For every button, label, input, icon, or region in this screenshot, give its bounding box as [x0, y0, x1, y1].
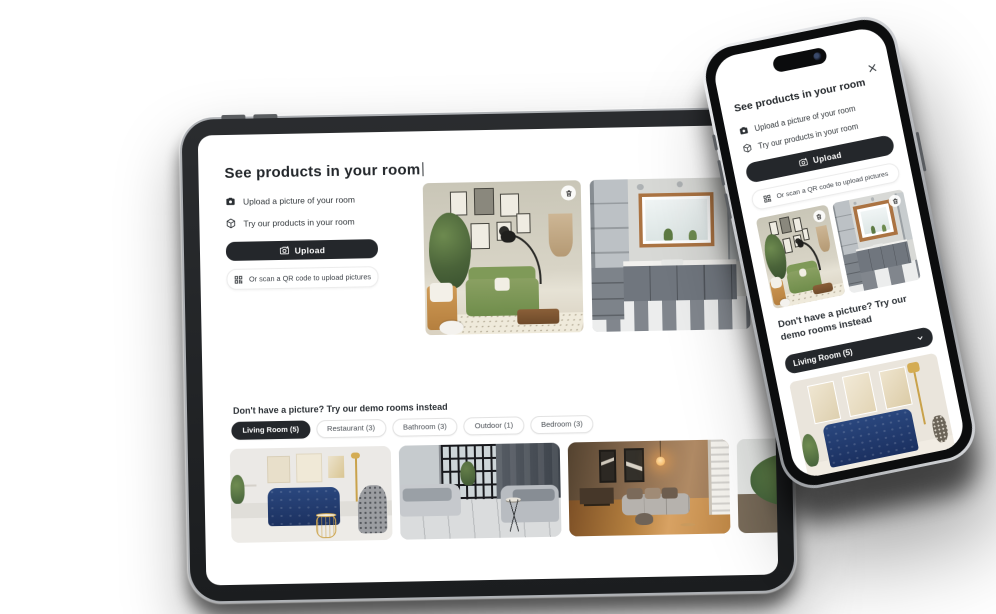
demo-room-list	[230, 436, 779, 543]
wall-art	[598, 450, 616, 483]
ceiling-light	[677, 181, 683, 187]
wall-frame	[473, 188, 494, 216]
demo-room-grey-sectional[interactable]	[399, 443, 562, 540]
tablet-volume-button	[253, 114, 277, 118]
tablet-mockup: See products in your room Upload a pictu…	[181, 108, 794, 602]
cube-icon	[225, 218, 236, 229]
feature-label: Upload a picture of your room	[243, 194, 355, 206]
floor-lamp	[912, 367, 926, 424]
feature-label: Try our products in your room	[243, 216, 354, 228]
trash-icon	[891, 197, 899, 205]
wall-art	[806, 381, 840, 424]
room-photo-kitchen	[832, 189, 921, 294]
close-icon[interactable]	[865, 61, 879, 75]
upload-button[interactable]: Upload	[226, 239, 378, 261]
plant	[428, 213, 472, 290]
lamp-shade	[501, 230, 515, 242]
tablet-screen: See products in your room Upload a pictu…	[198, 125, 779, 586]
macrame-hanging	[816, 225, 832, 252]
tab-bedroom[interactable]: Bedroom (3)	[530, 415, 594, 434]
trash-icon	[564, 189, 572, 197]
upload-button-label: Upload	[812, 150, 842, 165]
cushion	[429, 283, 453, 302]
tab-bathroom[interactable]: Bathroom (3)	[392, 418, 458, 437]
feature-upload-picture: Upload a picture of your room	[225, 194, 355, 207]
cushion	[627, 488, 643, 500]
gold-side-table	[316, 515, 336, 539]
wall-art	[624, 448, 644, 483]
wall-art	[267, 455, 290, 483]
tab-living-room[interactable]: Living Room (5)	[231, 420, 310, 440]
tripod-lamp	[506, 500, 523, 532]
tab-restaurant[interactable]: Restaurant (3)	[316, 419, 386, 438]
room-photo-navy-sofa	[230, 446, 393, 543]
demo-room-tabs: Living Room (5) Restaurant (3) Bathroom …	[231, 415, 594, 440]
page-background: See products in your room Upload a pictu…	[0, 0, 996, 614]
text-caret	[422, 162, 424, 176]
patterned-armchair	[358, 485, 388, 534]
lower-cabinets	[623, 264, 737, 301]
floor-lamp	[355, 455, 358, 502]
wall-art	[878, 366, 912, 409]
pendant-bulb	[656, 457, 666, 467]
window-plant	[663, 229, 673, 241]
demo-rooms-heading: Don't have a picture? Try our demo rooms…	[233, 402, 448, 416]
room-photo-plant-hallway	[737, 436, 779, 533]
feature-try-products: Try our products in your room	[225, 216, 354, 229]
pillow	[494, 277, 510, 291]
demo-room-plant-hallway[interactable]	[737, 436, 779, 533]
plant	[230, 475, 245, 503]
trash-icon	[815, 212, 823, 220]
uploaded-room-image-green-sofa[interactable]	[756, 204, 845, 309]
cushions	[403, 488, 452, 502]
upper-cabinets	[832, 200, 860, 256]
chevron-down-icon	[915, 333, 926, 344]
lamp-shade	[906, 361, 920, 373]
plant	[460, 461, 475, 486]
front-camera	[813, 52, 822, 61]
drawer-cabinets	[591, 268, 624, 320]
sideboard	[580, 488, 614, 505]
dropdown-value: Living Room (5)	[792, 347, 853, 368]
qr-code-icon	[234, 274, 244, 284]
wall-frame	[779, 216, 792, 234]
wall-art	[841, 371, 877, 417]
upload-button-label: Upload	[295, 245, 326, 256]
room-photo-green-sofa	[423, 180, 584, 335]
kitchen-window	[642, 196, 711, 244]
wall-art	[328, 456, 345, 478]
ottoman	[635, 513, 653, 525]
camera-icon	[738, 125, 750, 137]
camera-plus-icon	[279, 245, 290, 256]
room-photo-grey-sectional	[399, 443, 562, 540]
ceiling-light	[637, 184, 643, 190]
dynamic-island	[772, 47, 828, 73]
uploaded-images-row	[756, 189, 921, 309]
camera-plus-icon	[797, 156, 809, 168]
ceiling-light	[853, 201, 857, 205]
uploaded-room-image-kitchen[interactable]	[832, 189, 921, 294]
wall-frame	[517, 213, 532, 233]
ceiling-light	[871, 197, 875, 201]
wall-art	[296, 453, 322, 483]
cushion	[644, 488, 660, 500]
coffee-table	[517, 308, 560, 324]
demo-room-warm-wood[interactable]	[568, 439, 731, 536]
qr-code-icon	[762, 193, 773, 204]
sink	[661, 259, 683, 266]
plant	[800, 433, 821, 468]
page-title: See products in your room	[224, 161, 424, 182]
page-title-text: See products in your room	[224, 161, 420, 182]
wall-frame	[471, 223, 490, 249]
tablet-volume-button	[221, 115, 245, 119]
window-plant	[689, 230, 697, 241]
macrame-hanging	[548, 214, 572, 257]
cushion	[662, 487, 678, 499]
camera-icon	[225, 196, 236, 207]
lamp-shade	[351, 452, 361, 459]
room-photo-navy-velvet-sofa	[789, 353, 955, 478]
cube-icon	[741, 142, 753, 154]
wall-frame	[801, 228, 810, 241]
uploaded-room-image-green-sofa[interactable]	[423, 180, 584, 335]
demo-room-navy-velvet-sofa[interactable]	[789, 353, 955, 478]
qr-button-label: Or scan a QR code to upload pictures	[249, 272, 371, 283]
room-photo-green-sofa	[756, 204, 845, 309]
demo-room-navy-sofa[interactable]	[230, 446, 393, 543]
tab-outdoor[interactable]: Outdoor (1)	[464, 416, 525, 435]
upper-cabinets	[590, 179, 630, 268]
window-blinds	[708, 439, 730, 515]
uploaded-images-row	[423, 177, 751, 335]
room-photo-warm-wood	[568, 439, 731, 536]
table-top	[316, 513, 337, 517]
lamp-shade	[796, 239, 804, 248]
qr-scan-button[interactable]: Or scan a QR code to upload pictures	[226, 266, 378, 290]
